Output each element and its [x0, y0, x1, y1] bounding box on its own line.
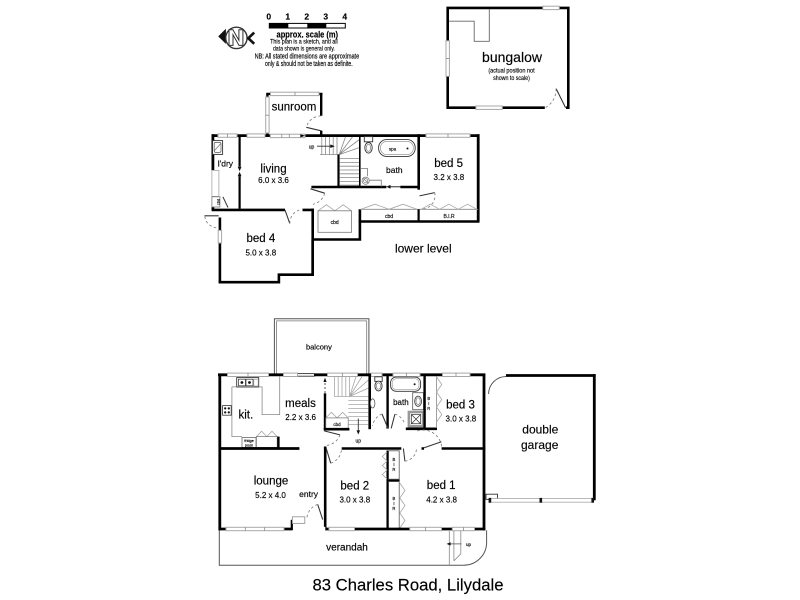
svg-text:bungalow: bungalow [482, 49, 543, 65]
svg-text:3.0 x 3.8: 3.0 x 3.8 [339, 496, 370, 505]
svg-text:posn: posn [245, 444, 253, 448]
svg-text:bed 4: bed 4 [247, 233, 276, 245]
svg-text:2.2 x 3.6: 2.2 x 3.6 [285, 413, 316, 422]
svg-text:cbd: cbd [331, 220, 339, 226]
svg-text:This plan is a sketch, and all: This plan is a sketch, and all [270, 39, 338, 46]
svg-text:bed 2: bed 2 [340, 480, 369, 492]
svg-text:bath: bath [386, 165, 403, 175]
svg-text:1: 1 [285, 12, 290, 22]
svg-text:bed 5: bed 5 [434, 158, 463, 170]
svg-text:6.0 x 3.6: 6.0 x 3.6 [258, 176, 289, 185]
svg-text:2: 2 [304, 12, 309, 22]
svg-text:R: R [427, 406, 430, 411]
svg-text:R: R [392, 467, 395, 472]
svg-text:l'dry: l'dry [218, 158, 234, 168]
svg-text:bath: bath [393, 398, 409, 407]
svg-text:cbd: cbd [385, 214, 393, 220]
svg-text:kit.: kit. [238, 409, 253, 421]
svg-text:cbd: cbd [217, 199, 221, 205]
svg-text:0: 0 [266, 12, 271, 22]
svg-text:5.2 x 4.0: 5.2 x 4.0 [255, 491, 286, 500]
svg-text:data shown is general only.: data shown is general only. [273, 46, 335, 53]
svg-text:living: living [260, 163, 286, 175]
svg-text:shown to scale): shown to scale) [493, 75, 530, 82]
svg-text:balcony: balcony [306, 342, 332, 351]
svg-text:spa: spa [389, 146, 397, 151]
svg-text:R: R [392, 506, 395, 511]
svg-text:up: up [309, 144, 315, 150]
svg-text:entry: entry [299, 489, 319, 499]
svg-text:sunroom: sunroom [272, 101, 317, 113]
svg-text:3.0 x 3.8: 3.0 x 3.8 [446, 414, 477, 423]
svg-text:3: 3 [323, 12, 328, 22]
svg-text:double: double [522, 423, 558, 437]
svg-text:bed 1: bed 1 [427, 480, 456, 492]
svg-text:4.2 x 3.8: 4.2 x 3.8 [426, 496, 457, 505]
svg-text:83 Charles Road, Lilydale: 83 Charles Road, Lilydale [313, 576, 504, 594]
svg-text:meals: meals [285, 398, 316, 410]
svg-text:garage: garage [521, 438, 559, 452]
svg-text:B.I.R: B.I.R [443, 214, 455, 220]
svg-text:5.0 x 3.8: 5.0 x 3.8 [245, 248, 276, 257]
svg-text:4: 4 [342, 12, 347, 22]
svg-text:only & should not be taken as: only & should not be taken as definite. [265, 61, 353, 68]
svg-text:cbd: cbd [333, 422, 341, 427]
svg-text:up: up [356, 439, 362, 445]
svg-text:lounge: lounge [254, 475, 289, 487]
svg-text:bed 3: bed 3 [446, 400, 475, 412]
svg-text:NB: All stated dimensions are: NB: All stated dimensions are approximat… [255, 53, 360, 60]
svg-text:lower level: lower level [395, 241, 452, 255]
svg-text:fridge: fridge [244, 439, 254, 443]
svg-text:verandah: verandah [326, 543, 368, 554]
svg-text:3.2 x 3.8: 3.2 x 3.8 [434, 173, 465, 182]
svg-text:up: up [466, 542, 472, 547]
svg-text:(actual position not: (actual position not [488, 67, 535, 74]
